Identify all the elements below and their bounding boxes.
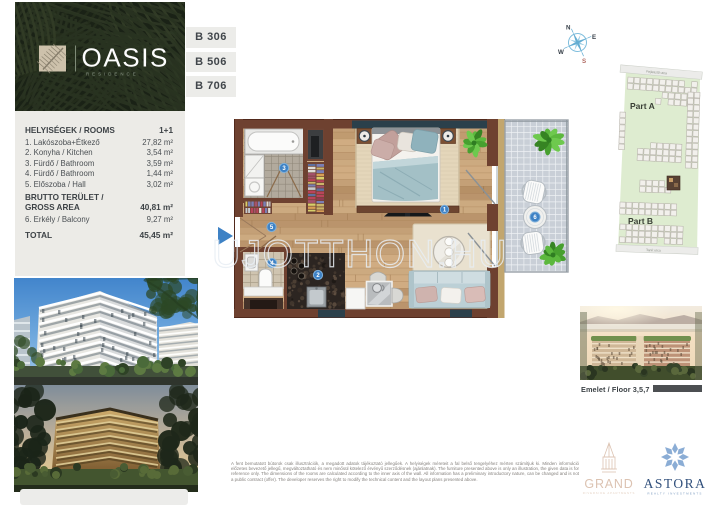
svg-text:GRAND: GRAND bbox=[584, 477, 633, 491]
svg-text:E: E bbox=[592, 34, 596, 41]
svg-text:RESIDENCE: RESIDENCE bbox=[86, 72, 139, 77]
svg-text:ASTORA: ASTORA bbox=[644, 476, 707, 491]
svg-text:Part B: Part B bbox=[628, 216, 653, 226]
svg-text:REALTY INVESTMENTS: REALTY INVESTMENTS bbox=[647, 492, 702, 496]
svg-text:S: S bbox=[582, 58, 586, 65]
svg-text:Tanít utca: Tanít utca bbox=[646, 248, 661, 253]
svg-text:Part A: Part A bbox=[630, 101, 655, 111]
svg-text:RIVERSIDE APARTMENTS: RIVERSIDE APARTMENTS bbox=[583, 491, 636, 495]
svg-text:W: W bbox=[558, 49, 564, 56]
svg-text:OASIS: OASIS bbox=[82, 43, 169, 73]
svg-text:N: N bbox=[566, 25, 571, 32]
